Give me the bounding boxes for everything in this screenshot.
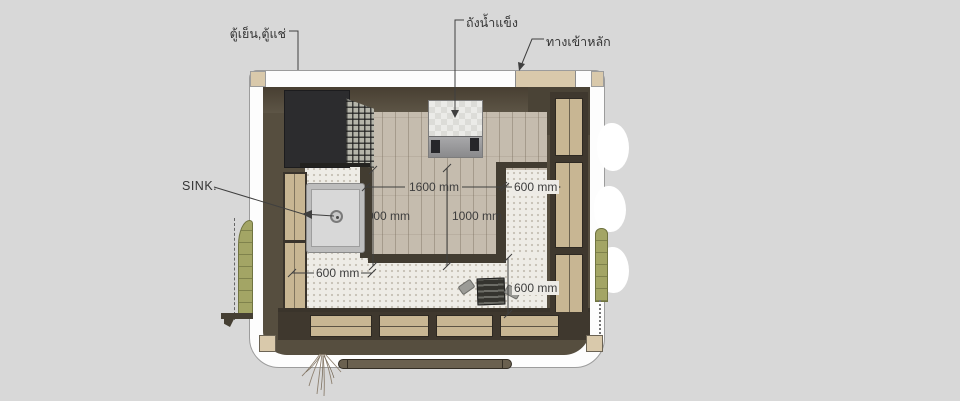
dimension-aisle-depth: 1000 mm [452,209,502,223]
annotation-lines [0,0,960,401]
fridge-label: ตู้เย็น,ตู้แช่ [222,24,286,44]
floor-plan-canvas: 1000 mm [0,0,960,401]
dimension-right-counter-depth: 600 mm [512,180,559,194]
main-entrance-label: ทางเข้าหลัก [546,32,611,52]
sink-label: SINK. [182,179,217,193]
dimension-floor-width: 1600 mm [406,180,462,194]
dimension-sink-counter-width: 600 mm [314,266,361,280]
dimension-front-counter-depth: 600 mm [512,281,559,295]
ice-tank-label: ถังน้ำแข็ง [466,13,518,33]
